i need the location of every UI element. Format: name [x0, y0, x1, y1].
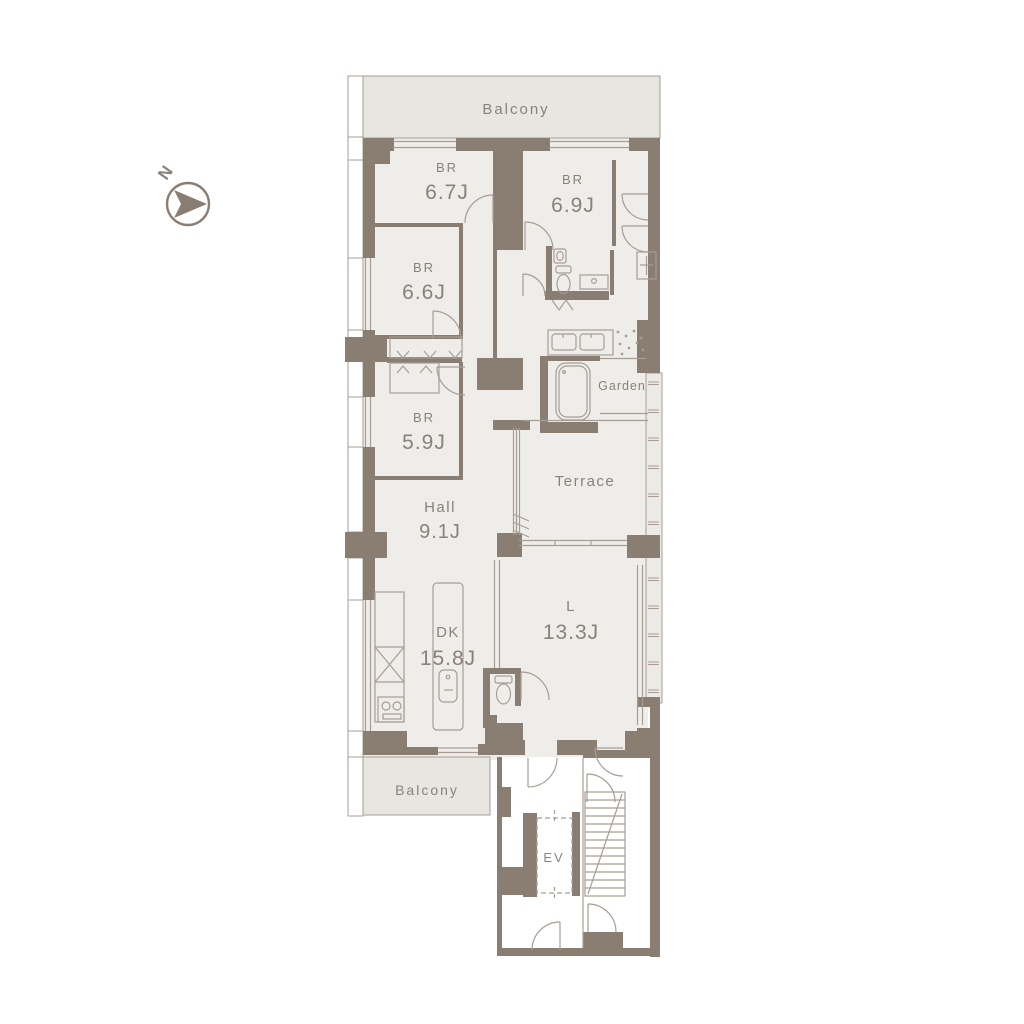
br-69-area: 6.9J	[551, 194, 595, 217]
floor-plan: N Balcony BR 6.7J BR 6.9J BR 6.6J BR 5.9…	[0, 0, 1024, 1024]
br-59-area: 5.9J	[402, 431, 446, 454]
compass-needle	[174, 190, 207, 218]
elevator-label: EV	[543, 850, 564, 865]
terrace-label: Terrace	[555, 473, 616, 490]
br-66-label: BR	[413, 260, 435, 275]
dk-area: 15.8J	[420, 647, 476, 670]
balcony-top-label: Balcony	[482, 101, 549, 118]
compass-icon: N	[154, 162, 209, 225]
br-67-area: 6.7J	[425, 181, 469, 204]
left-exterior-strip	[348, 76, 363, 816]
north-label: N	[154, 162, 177, 183]
balcony-bottom-label: Balcony	[395, 782, 459, 798]
hall-label: Hall	[424, 499, 456, 516]
br-66-area: 6.6J	[402, 281, 446, 304]
living-label: L	[566, 598, 576, 615]
floor-plan-page: N Balcony BR 6.7J BR 6.9J BR 6.6J BR 5.9…	[0, 0, 1024, 1024]
br-59-label: BR	[413, 410, 435, 425]
br-69-label: BR	[562, 172, 584, 187]
living-area: 13.3J	[543, 621, 599, 644]
hall-area: 9.1J	[419, 521, 461, 543]
br-67-label: BR	[436, 160, 458, 175]
garden-label: Garden	[598, 379, 646, 393]
dk-label: DK	[436, 624, 460, 641]
